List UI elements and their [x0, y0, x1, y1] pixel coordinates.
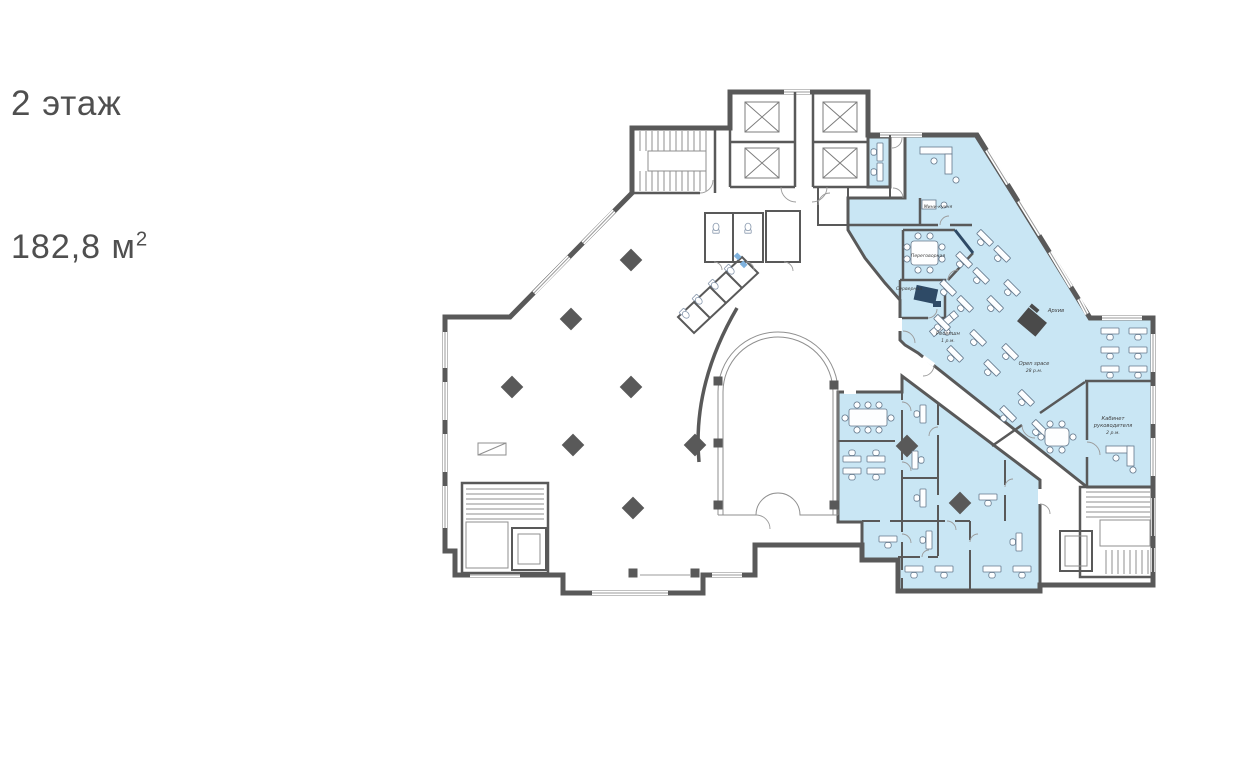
label-open-space-capacity: 28 р.м.: [1026, 368, 1043, 374]
label-director-1: Кабинет: [1101, 416, 1125, 422]
label-archive: Архив: [1047, 308, 1064, 314]
highlight-areas: [838, 135, 1153, 591]
staircase-bottom-right: [1060, 487, 1153, 577]
elevator-core: [730, 92, 868, 187]
floor-plan: Мини-кухня Переговорная Серверная Ресепш…: [0, 0, 1253, 758]
label-mini-kitchen: Мини-кухня: [924, 204, 953, 210]
atrium: [698, 308, 838, 515]
label-reception: Ресепшн: [936, 331, 961, 337]
staircase-bottom-left: [462, 443, 548, 573]
label-director-capacity: 2 р.м.: [1106, 430, 1120, 436]
staircase-top-left: [632, 128, 715, 193]
label-open-space: Open space: [1019, 361, 1050, 367]
label-meeting-room: Переговорная: [911, 253, 945, 259]
page: 2 этаж 182,8 м2: [0, 0, 1253, 758]
elevator-shaft-icons: [745, 102, 857, 178]
label-director-2: руководителя: [1093, 423, 1133, 429]
toilets: [678, 187, 848, 333]
label-reception-capacity: 1 р.м.: [941, 338, 955, 344]
label-server-room: Серверная: [896, 286, 922, 292]
